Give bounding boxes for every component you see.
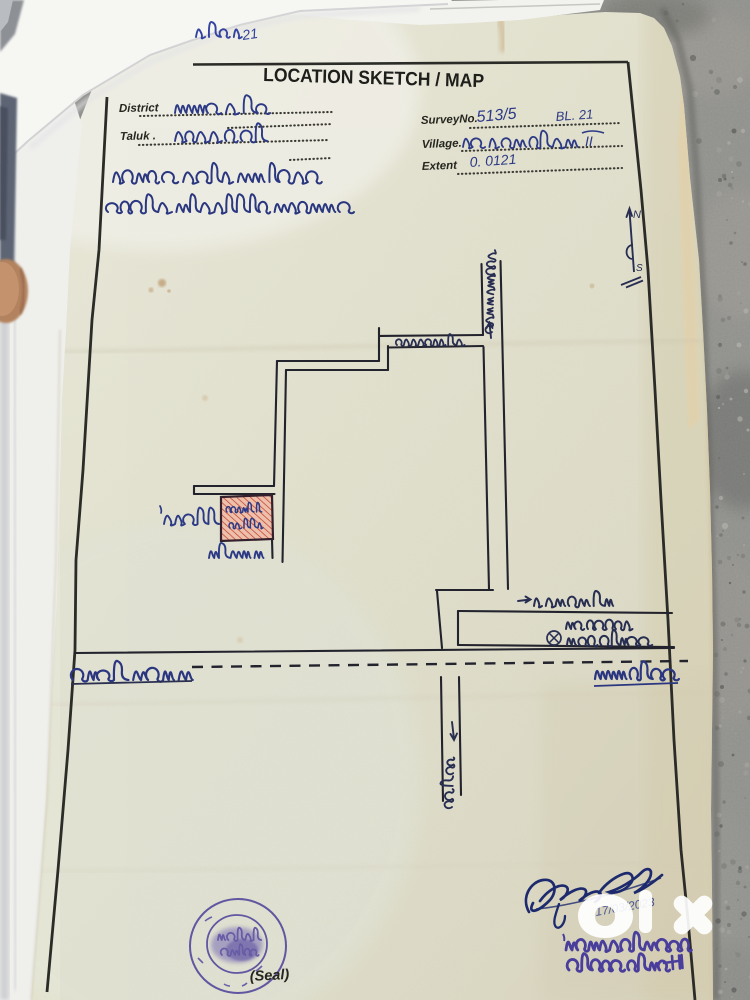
svg-text:21: 21 bbox=[240, 25, 259, 43]
svg-text:0. 0121: 0. 0121 bbox=[469, 151, 517, 170]
svg-text:(Seal): (Seal) bbox=[249, 967, 289, 985]
svg-text:District: District bbox=[119, 102, 160, 115]
svg-text:N: N bbox=[633, 209, 641, 221]
svg-text:Taluk .: Taluk . bbox=[120, 130, 156, 143]
svg-text:Village.: Village. bbox=[422, 138, 462, 151]
svg-text:BL. 21: BL. 21 bbox=[555, 106, 594, 124]
svg-text:SurveyNo.: SurveyNo. bbox=[421, 113, 478, 127]
svg-text:Extent: Extent bbox=[422, 160, 459, 173]
svg-text:S: S bbox=[636, 263, 643, 274]
svg-text:513/5: 513/5 bbox=[476, 106, 517, 126]
svg-text:II: II bbox=[585, 133, 593, 149]
